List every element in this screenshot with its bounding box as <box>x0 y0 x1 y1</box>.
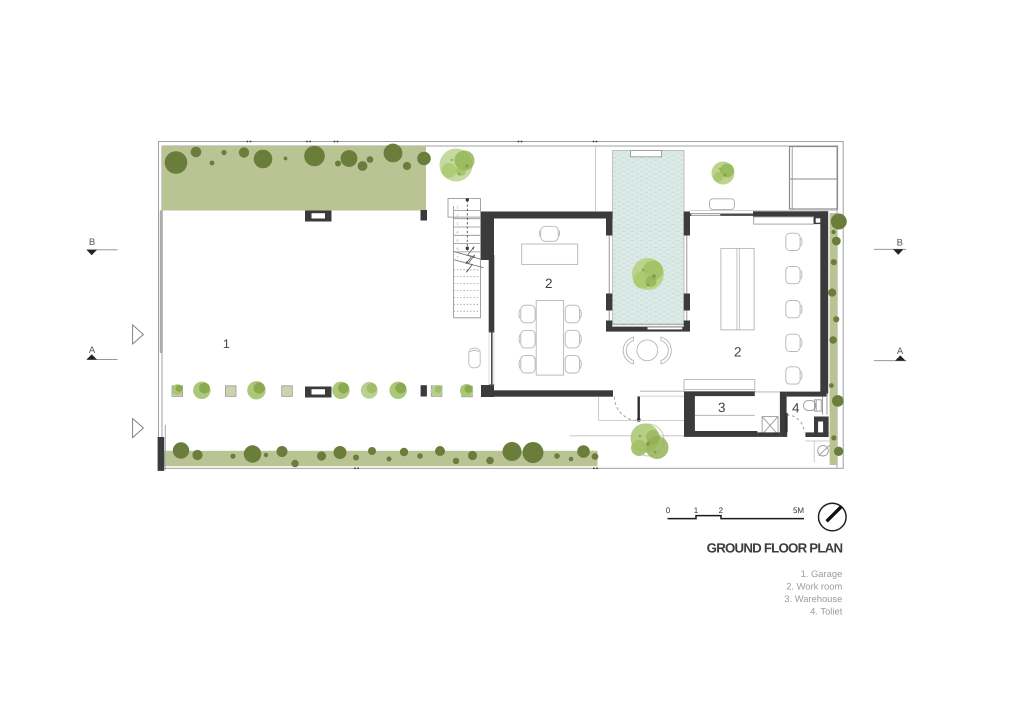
svg-text:2. Work room: 2. Work room <box>786 581 842 592</box>
svg-text:4: 4 <box>792 401 800 416</box>
svg-text:2: 2 <box>734 345 742 360</box>
svg-text:4. Toliet: 4. Toliet <box>810 605 843 616</box>
svg-text:1: 1 <box>694 506 699 515</box>
svg-text:7: 7 <box>457 255 459 259</box>
svg-text:1: 1 <box>457 206 459 210</box>
svg-text:0: 0 <box>666 506 671 515</box>
svg-text:2: 2 <box>545 276 553 291</box>
svg-text:2: 2 <box>719 506 724 515</box>
svg-text:GROUND FLOOR PLAN: GROUND FLOOR PLAN <box>707 541 843 556</box>
svg-text:1: 1 <box>223 337 230 351</box>
svg-text:5M: 5M <box>793 506 804 515</box>
svg-text:B: B <box>897 238 903 249</box>
svg-text:3: 3 <box>718 400 726 415</box>
svg-text:1. Garage: 1. Garage <box>801 568 843 579</box>
svg-text:3. Warehouse: 3. Warehouse <box>784 593 842 604</box>
svg-text:6: 6 <box>457 247 459 251</box>
svg-text:3: 3 <box>457 222 459 226</box>
svg-text:A: A <box>89 345 96 356</box>
svg-text:2: 2 <box>457 214 459 218</box>
svg-text:B: B <box>89 237 95 248</box>
svg-text:4: 4 <box>457 231 459 235</box>
svg-text:5: 5 <box>457 239 459 243</box>
